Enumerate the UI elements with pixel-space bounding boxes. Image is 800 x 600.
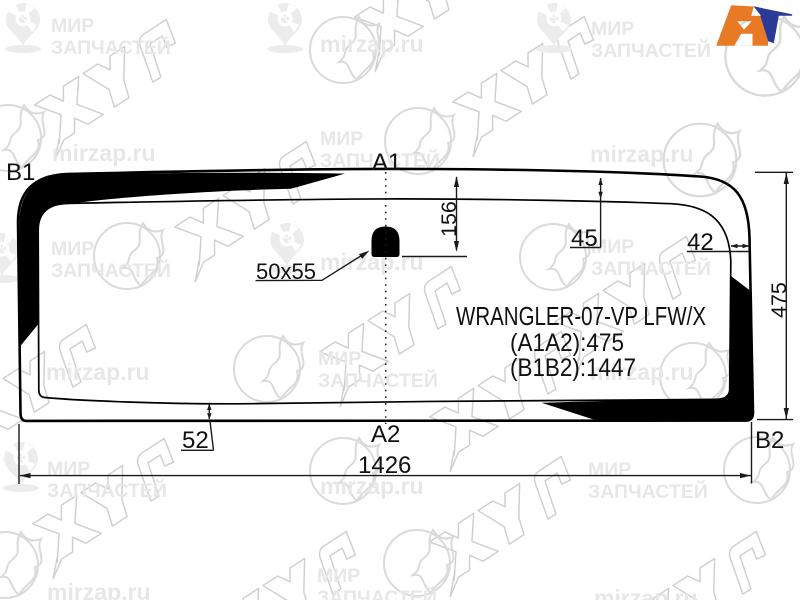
svg-text:mirzap.ru: mirzap.ru: [52, 140, 156, 166]
svg-text:МИР: МИР: [51, 15, 94, 37]
svg-text:ЗАПЧАСТЕЙ: ЗАПЧАСТЕЙ: [51, 258, 171, 282]
svg-text:mirzap.ru: mirzap.ru: [594, 585, 698, 600]
svg-text:МИР: МИР: [320, 128, 363, 150]
svg-text:ЗАПЧАСТЕЙ: ЗАПЧАСТЕЙ: [51, 35, 171, 59]
svg-text:B2: B2: [755, 427, 784, 454]
svg-text:B1: B1: [6, 159, 35, 186]
svg-text:МИР: МИР: [588, 459, 631, 481]
svg-text:ЗАПЧАСТЕЙ: ЗАПЧАСТЕЙ: [588, 479, 708, 503]
svg-text:1426: 1426: [358, 452, 411, 479]
svg-text:(B1B2):1447: (B1B2):1447: [510, 354, 636, 382]
svg-text:475: 475: [767, 282, 791, 318]
svg-text:mirzap.ru: mirzap.ru: [320, 31, 424, 57]
svg-text:МИР: МИР: [317, 565, 360, 587]
svg-text:ЗАПЧАСТЕЙ: ЗАПЧАСТЕЙ: [591, 256, 711, 280]
svg-text:(A1A2):475: (A1A2):475: [510, 329, 624, 357]
svg-text:52: 52: [182, 427, 209, 454]
svg-text:mirzap.ru: mirzap.ru: [47, 579, 151, 600]
svg-text:A2: A2: [371, 421, 400, 448]
svg-text:МИР: МИР: [51, 238, 94, 260]
svg-text:МИР: МИР: [47, 458, 90, 480]
svg-text:50x55: 50x55: [256, 259, 316, 284]
svg-text:ЗАПЧАСТЕЙ: ЗАПЧАСТЕЙ: [317, 585, 437, 600]
svg-text:WRANGLER-07-VP LFW/X: WRANGLER-07-VP LFW/X: [456, 301, 706, 331]
svg-text:156: 156: [437, 201, 461, 237]
svg-text:45: 45: [571, 225, 598, 252]
svg-text:A1: A1: [372, 149, 401, 176]
svg-text:ЗАПЧАСТЕЙ: ЗАПЧАСТЕЙ: [47, 478, 167, 502]
svg-text:42: 42: [687, 229, 714, 256]
svg-text:МИР: МИР: [591, 18, 634, 40]
svg-text:МИР: МИР: [318, 348, 361, 370]
svg-text:mirzap.ru: mirzap.ru: [46, 359, 150, 385]
svg-text:ЗАПЧАСТЕЙ: ЗАПЧАСТЕЙ: [591, 38, 711, 62]
svg-text:mirzap.ru: mirzap.ru: [590, 141, 694, 167]
svg-text:ЗАПЧАСТЕЙ: ЗАПЧАСТЕЙ: [318, 368, 438, 392]
